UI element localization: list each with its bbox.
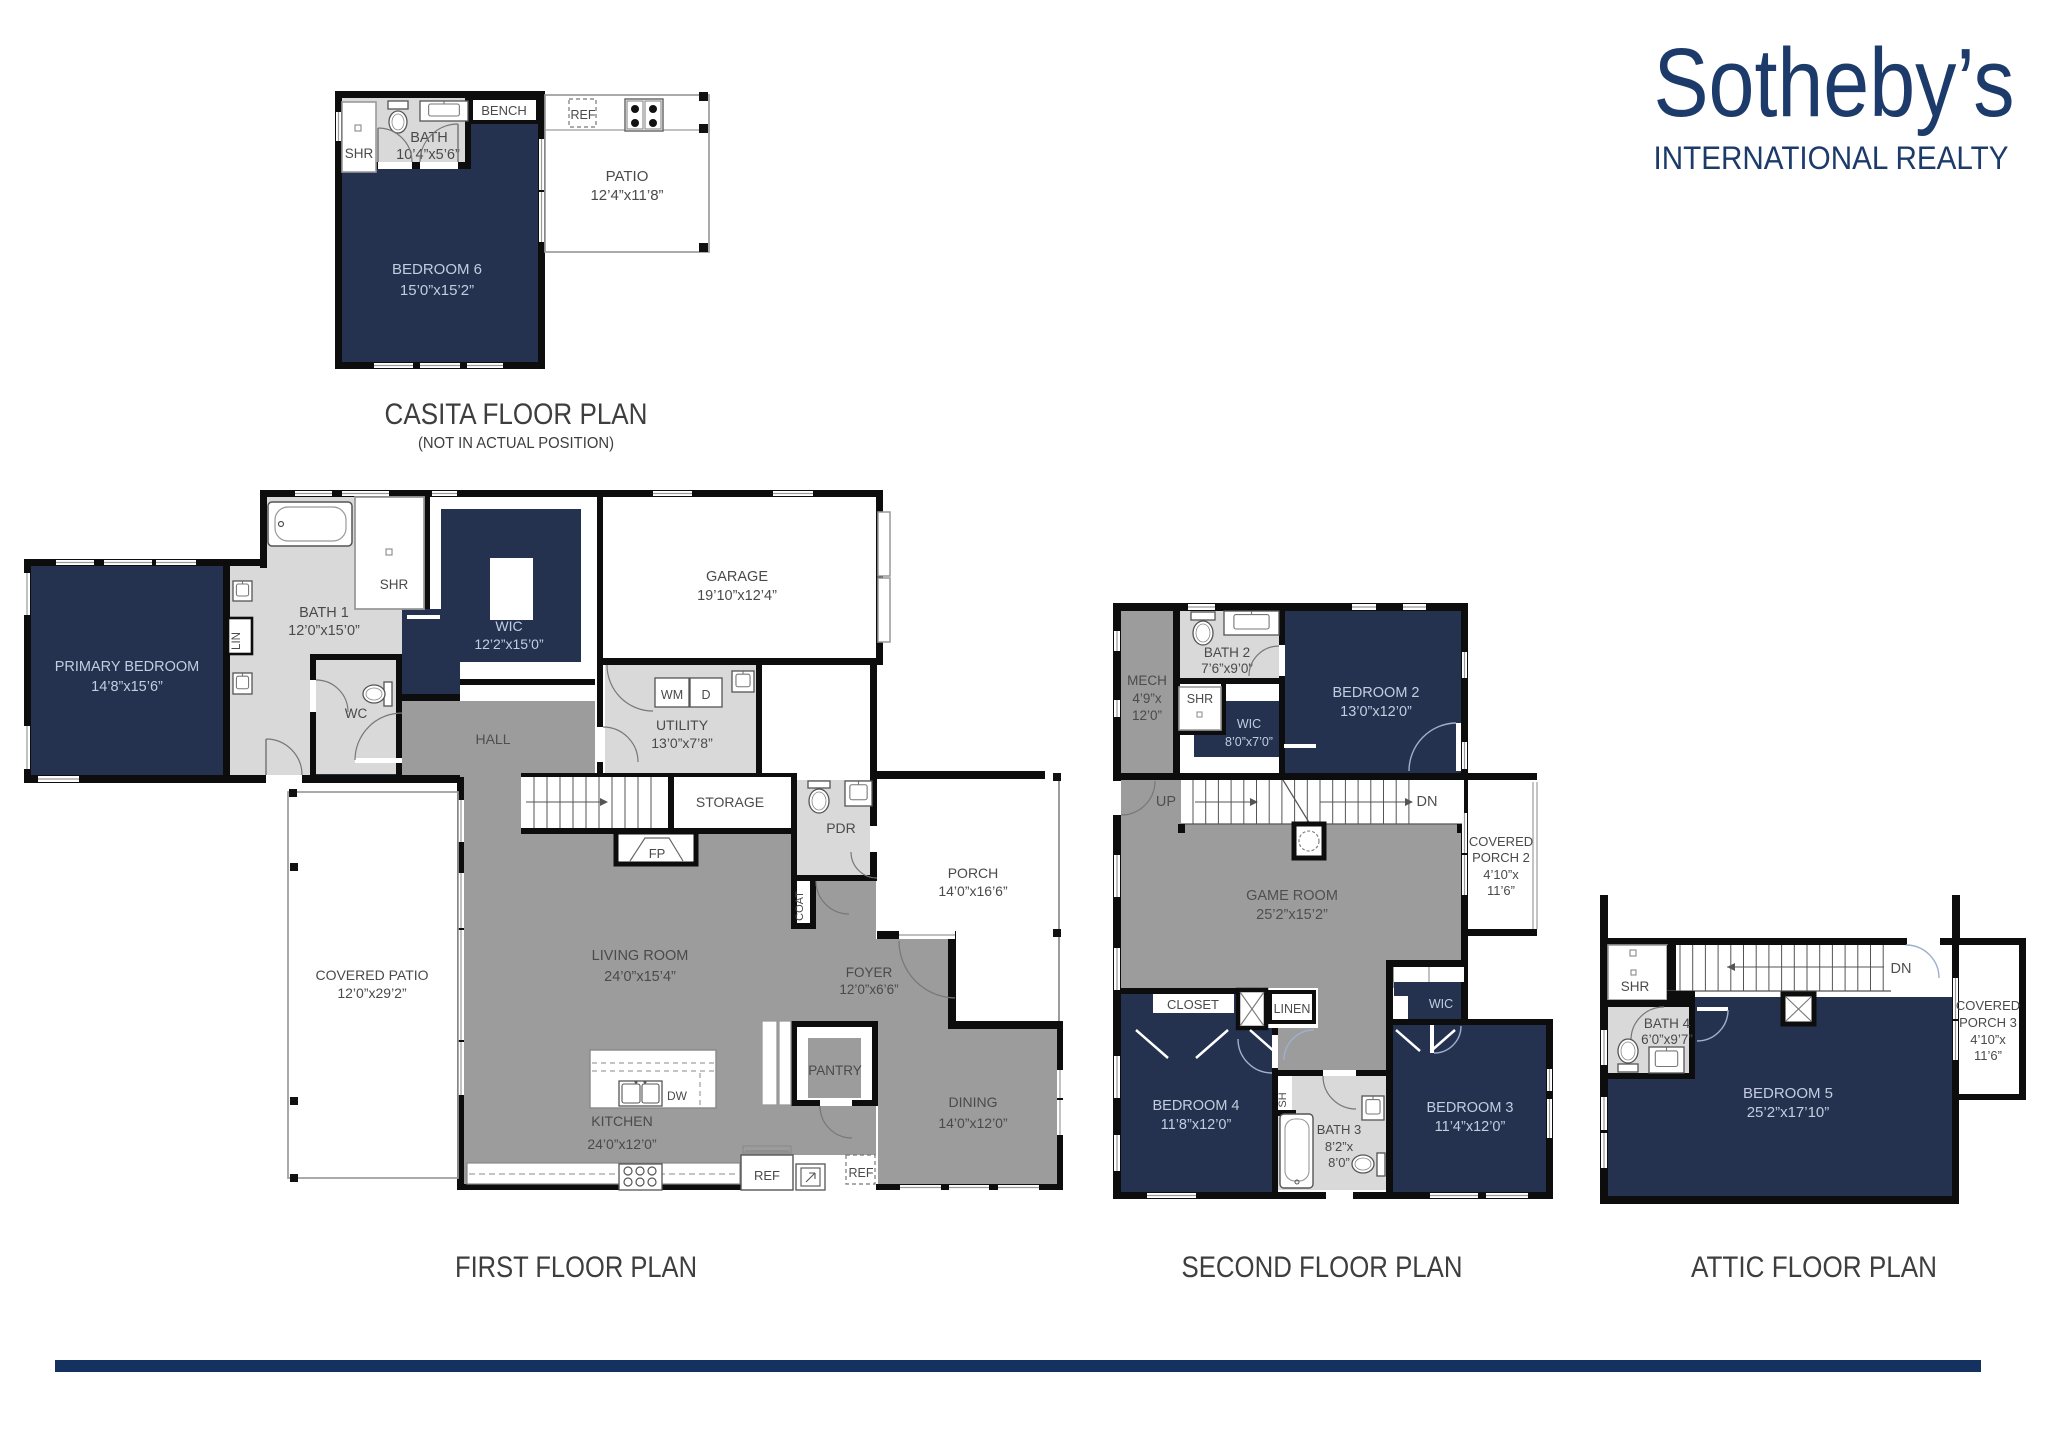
svg-text:COVERED: COVERED xyxy=(1469,834,1533,849)
svg-text:PORCH 3: PORCH 3 xyxy=(1959,1015,2017,1030)
svg-text:13’0”x7’8”: 13’0”x7’8” xyxy=(651,735,713,751)
svg-text:REF: REF xyxy=(754,1168,780,1183)
svg-text:13’0”x12’0”: 13’0”x12’0” xyxy=(1340,704,1412,720)
svg-text:LIVING ROOM: LIVING ROOM xyxy=(592,948,689,964)
svg-text:WIC: WIC xyxy=(1237,717,1261,731)
svg-text:GAME ROOM: GAME ROOM xyxy=(1246,888,1338,904)
svg-text:LINEN: LINEN xyxy=(1274,1002,1311,1016)
svg-text:11’6”: 11’6” xyxy=(1974,1048,2002,1063)
svg-text:BATH 2: BATH 2 xyxy=(1204,645,1250,660)
svg-text:BEDROOM 3: BEDROOM 3 xyxy=(1426,1100,1513,1116)
svg-text:DN: DN xyxy=(1891,961,1912,977)
svg-text:PORCH: PORCH xyxy=(948,865,999,881)
svg-text:BEDROOM 5: BEDROOM 5 xyxy=(1743,1085,1833,1102)
svg-text:24’0”x15’4”: 24’0”x15’4” xyxy=(604,969,676,985)
svg-text:STORAGE: STORAGE xyxy=(696,794,764,810)
svg-text:HALL: HALL xyxy=(475,731,510,747)
svg-text:WIC: WIC xyxy=(495,618,522,634)
svg-text:12’4”x11’8”: 12’4”x11’8” xyxy=(590,187,663,204)
svg-text:LIN: LIN xyxy=(231,632,243,650)
svg-text:BEDROOM 2: BEDROOM 2 xyxy=(1332,685,1419,701)
svg-text:GARAGE: GARAGE xyxy=(706,569,768,585)
svg-text:UTILITY: UTILITY xyxy=(656,717,709,733)
svg-text:PATIO: PATIO xyxy=(606,168,649,185)
svg-text:KITCHEN: KITCHEN xyxy=(591,1113,652,1129)
svg-text:BEDROOM 6: BEDROOM 6 xyxy=(392,261,482,278)
svg-text:WC: WC xyxy=(345,706,368,721)
svg-text:ATTIC FLOOR PLAN: ATTIC FLOOR PLAN xyxy=(1691,1251,1937,1284)
svg-text:12’0”: 12’0” xyxy=(1132,708,1162,723)
svg-text:CLOSET: CLOSET xyxy=(1167,997,1219,1012)
svg-text:BENCH: BENCH xyxy=(481,103,527,118)
svg-text:BATH 3: BATH 3 xyxy=(1317,1122,1362,1137)
svg-text:FP: FP xyxy=(649,846,666,861)
svg-text:PORCH 2: PORCH 2 xyxy=(1472,850,1530,865)
svg-text:4’9”x: 4’9”x xyxy=(1132,691,1162,706)
svg-text:D: D xyxy=(701,688,710,702)
svg-text:25’2”x17’10”: 25’2”x17’10” xyxy=(1747,1104,1830,1121)
svg-text:SH: SH xyxy=(1277,1092,1289,1107)
svg-text:FIRST FLOOR PLAN: FIRST FLOOR PLAN xyxy=(455,1251,697,1284)
svg-text:14’8”x15’6”: 14’8”x15’6” xyxy=(91,679,163,695)
svg-text:4’10”x: 4’10”x xyxy=(1970,1032,2006,1047)
svg-text:8’0”: 8’0” xyxy=(1328,1155,1350,1170)
svg-text:PANTRY: PANTRY xyxy=(808,1063,862,1078)
svg-text:CASITA FLOOR PLAN: CASITA FLOOR PLAN xyxy=(385,398,648,431)
svg-text:MECH: MECH xyxy=(1127,673,1167,688)
svg-text:BATH 1: BATH 1 xyxy=(299,605,349,621)
svg-text:(NOT IN ACTUAL POSITION): (NOT IN ACTUAL POSITION) xyxy=(418,435,614,452)
svg-text:WM: WM xyxy=(661,688,683,702)
svg-text:11’4”x12’0”: 11’4”x12’0” xyxy=(1435,1119,1506,1135)
svg-text:COAT: COAT xyxy=(794,891,806,921)
svg-text:25’2”x15’2”: 25’2”x15’2” xyxy=(1256,907,1328,923)
svg-text:SHR: SHR xyxy=(1187,692,1213,706)
svg-text:Sotheby’s: Sotheby’s xyxy=(1654,28,2015,137)
svg-text:BEDROOM 4: BEDROOM 4 xyxy=(1152,1098,1239,1114)
svg-text:SECOND FLOOR PLAN: SECOND FLOOR PLAN xyxy=(1182,1251,1463,1284)
svg-text:REF: REF xyxy=(571,108,596,122)
svg-text:FOYER: FOYER xyxy=(846,965,893,980)
svg-text:12’0”x29’2”: 12’0”x29’2” xyxy=(337,985,407,1001)
svg-text:DN: DN xyxy=(1417,794,1438,810)
svg-text:DINING: DINING xyxy=(949,1094,998,1110)
svg-text:COVERED: COVERED xyxy=(1956,998,2020,1013)
svg-text:UP: UP xyxy=(1156,794,1176,810)
svg-text:DW: DW xyxy=(667,1089,688,1103)
svg-text:PDR: PDR xyxy=(826,820,856,836)
svg-text:15’0”x15’2”: 15’0”x15’2” xyxy=(400,282,474,299)
svg-text:11’6”: 11’6” xyxy=(1487,883,1515,898)
svg-text:11’8”x12’0”: 11’8”x12’0” xyxy=(1161,1117,1232,1133)
svg-text:BATH 4: BATH 4 xyxy=(1644,1016,1691,1031)
svg-text:8’2”x: 8’2”x xyxy=(1325,1139,1354,1154)
svg-text:SHR: SHR xyxy=(1621,979,1650,994)
svg-text:10’4”x5’6”: 10’4”x5’6” xyxy=(396,147,460,163)
svg-text:4’10”x: 4’10”x xyxy=(1483,867,1519,882)
svg-text:SHR: SHR xyxy=(380,577,409,592)
svg-text:19’10”x12’4”: 19’10”x12’4” xyxy=(697,588,777,604)
svg-text:6’0”x9’7”: 6’0”x9’7” xyxy=(1641,1032,1693,1047)
svg-text:14’0”x16’6”: 14’0”x16’6” xyxy=(938,883,1008,899)
svg-text:12’2”x15’0”: 12’2”x15’0” xyxy=(474,636,544,652)
svg-text:PRIMARY BEDROOM: PRIMARY BEDROOM xyxy=(55,659,200,675)
svg-text:SHR: SHR xyxy=(345,146,374,161)
svg-text:12’0”x15’0”: 12’0”x15’0” xyxy=(288,623,360,639)
svg-text:12’0”x6’6”: 12’0”x6’6” xyxy=(839,982,898,997)
svg-text:WIC: WIC xyxy=(1429,997,1453,1011)
svg-text:REF: REF xyxy=(849,1166,874,1180)
svg-text:14’0”x12’0”: 14’0”x12’0” xyxy=(938,1115,1008,1131)
svg-text:7’6”x9’0”: 7’6”x9’0” xyxy=(1201,661,1253,676)
svg-text:COVERED PATIO: COVERED PATIO xyxy=(315,967,428,983)
svg-text:INTERNATIONAL REALTY: INTERNATIONAL REALTY xyxy=(1654,140,2009,176)
svg-text:8’0”x7’0”: 8’0”x7’0” xyxy=(1225,735,1273,749)
svg-text:24’0”x12’0”: 24’0”x12’0” xyxy=(587,1136,657,1152)
